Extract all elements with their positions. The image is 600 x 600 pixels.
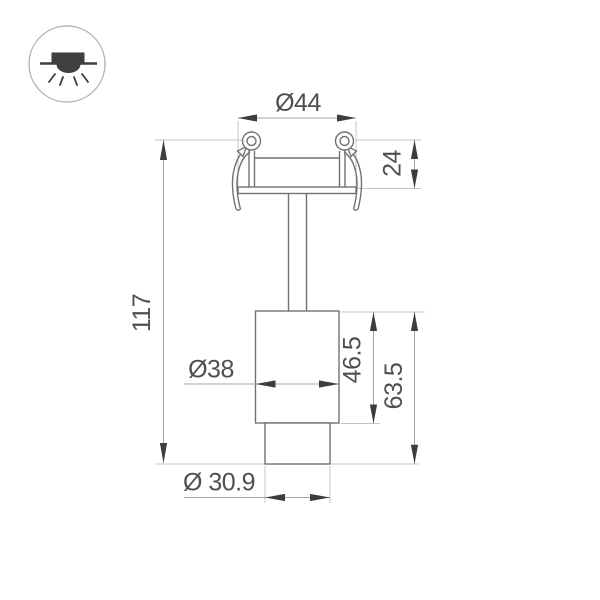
dimension-head-height: 63.5 xyxy=(380,312,418,464)
arrow-left-icon xyxy=(265,494,285,501)
dimension-trim-diameter: Ø44 xyxy=(238,89,356,122)
spotlight-dimension-drawing: Ø44 24 117 Ø38 46.5 63.5 Ø xyxy=(0,0,600,600)
arrow-down-icon xyxy=(411,170,418,189)
dim-label-head-height: 63.5 xyxy=(380,363,408,410)
clip-pivot-left-outer xyxy=(243,132,261,150)
arrow-up-icon xyxy=(160,140,167,160)
recessed-downlight-icon xyxy=(29,26,105,102)
arrow-up-icon xyxy=(411,140,418,159)
dimension-overall-height: 117 xyxy=(128,140,167,463)
dimension-recess-depth: 24 xyxy=(379,140,419,189)
arrow-left-icon xyxy=(238,114,257,121)
spotlight-fixture xyxy=(232,132,361,464)
dim-label-overall-height: 117 xyxy=(128,294,156,332)
dim-label-trim-diameter: Ø44 xyxy=(275,89,321,117)
arrow-right-icon xyxy=(337,114,356,121)
spring-wire-right-inner xyxy=(344,152,357,209)
dimension-tip-diameter: Ø 30.9 xyxy=(183,469,330,502)
spring-wire-right-tip xyxy=(354,209,359,210)
dim-label-recess-depth: 24 xyxy=(379,150,407,177)
dimension-body-height: 46.5 xyxy=(339,312,378,424)
arrow-down-icon xyxy=(411,445,418,464)
dim-label-tip-diameter: Ø 30.9 xyxy=(183,469,255,497)
trim-flange xyxy=(238,187,356,194)
dim-label-body-height: 46.5 xyxy=(339,337,367,384)
icon-lamp-housing xyxy=(52,53,85,63)
spring-wire-left-inner xyxy=(237,152,250,209)
arrow-up-icon xyxy=(411,312,418,331)
lens-section xyxy=(265,423,330,464)
body-cylinder xyxy=(256,311,340,423)
clip-pivot-right-outer xyxy=(336,132,354,150)
drawing-canvas: Ø44 24 117 Ø38 46.5 63.5 Ø xyxy=(0,0,600,600)
arrow-down-icon xyxy=(160,443,167,463)
dim-label-body-diameter: Ø38 xyxy=(188,356,234,384)
spring-wire-left-tip xyxy=(236,209,241,210)
arrow-up-icon xyxy=(370,312,377,331)
arrow-down-icon xyxy=(370,405,377,424)
arrow-right-icon xyxy=(310,494,330,501)
